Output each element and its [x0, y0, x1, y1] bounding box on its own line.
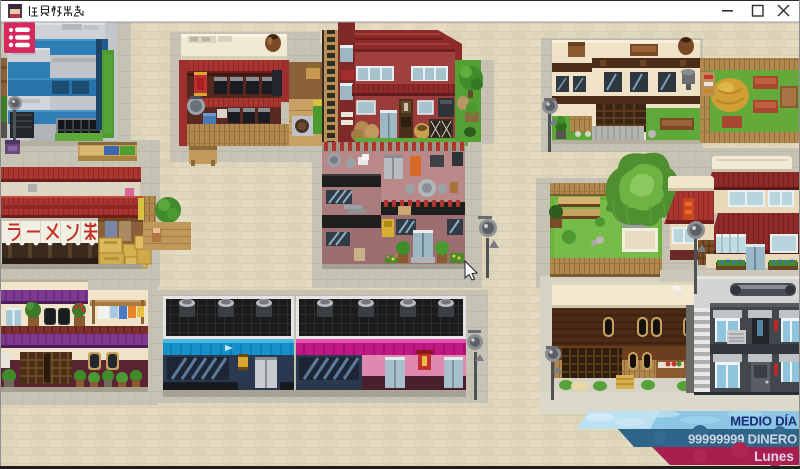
- svg-text:Lunes: Lunes: [754, 449, 794, 464]
- svg-text:MEDIO DÍA: MEDIO DÍA: [730, 414, 798, 429]
